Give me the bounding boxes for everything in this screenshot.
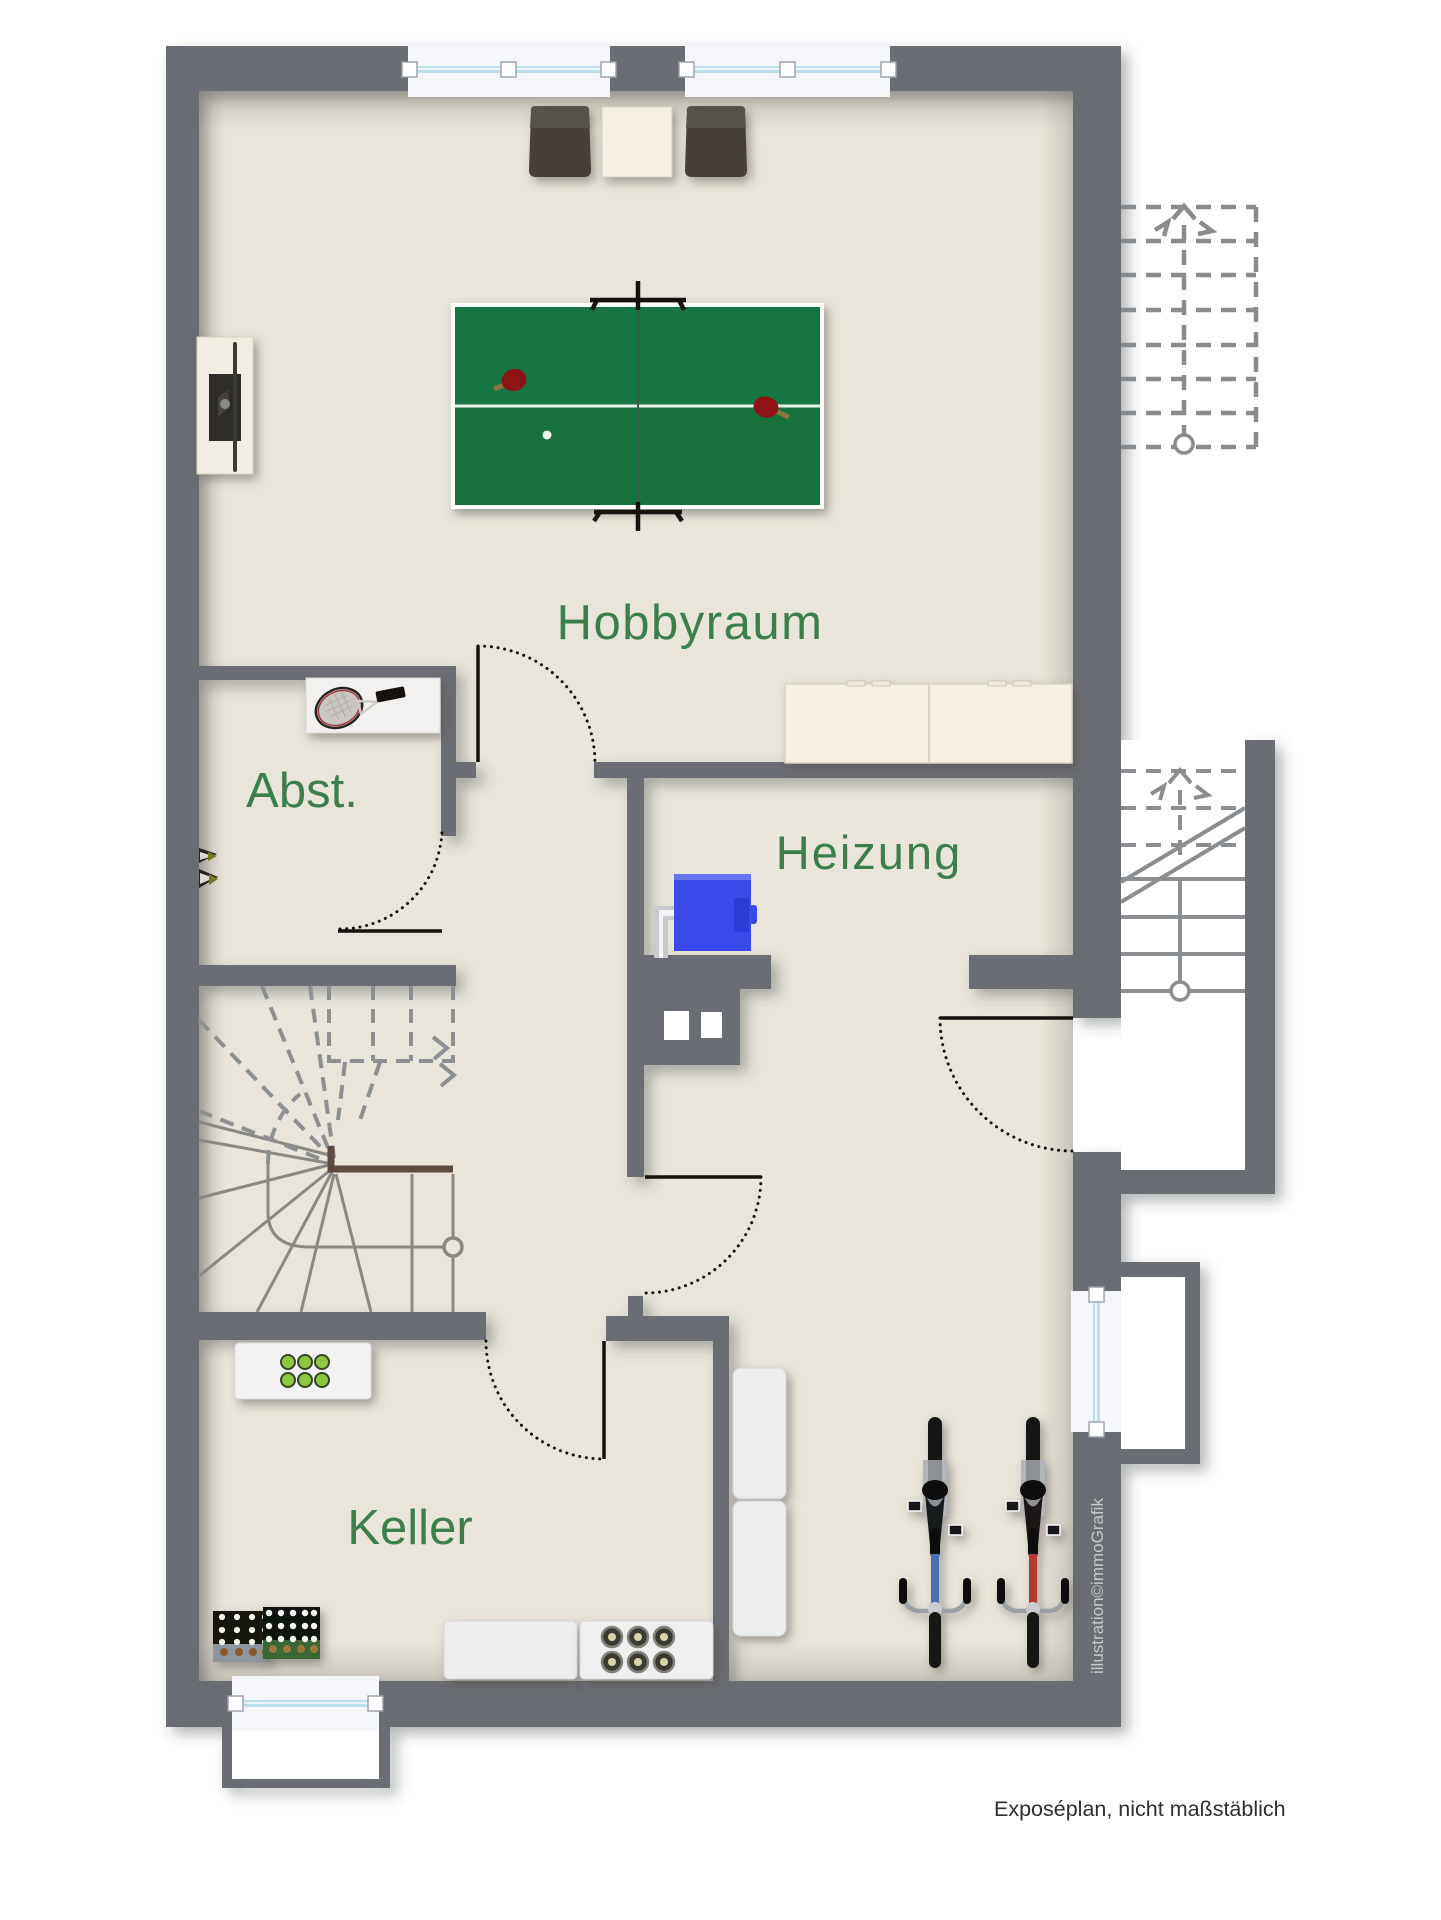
svg-text:Heizung: Heizung (776, 826, 962, 879)
svg-text:Abst.: Abst. (246, 764, 358, 818)
svg-text:Hobbyraum: Hobbyraum (557, 596, 824, 650)
svg-text:Keller: Keller (347, 1501, 472, 1555)
svg-text:illustration©immoGrafik: illustration©immoGrafik (1088, 1498, 1107, 1674)
svg-text:Exposéplan, nicht maßstäblich: Exposéplan, nicht maßstäblich (994, 1797, 1286, 1821)
